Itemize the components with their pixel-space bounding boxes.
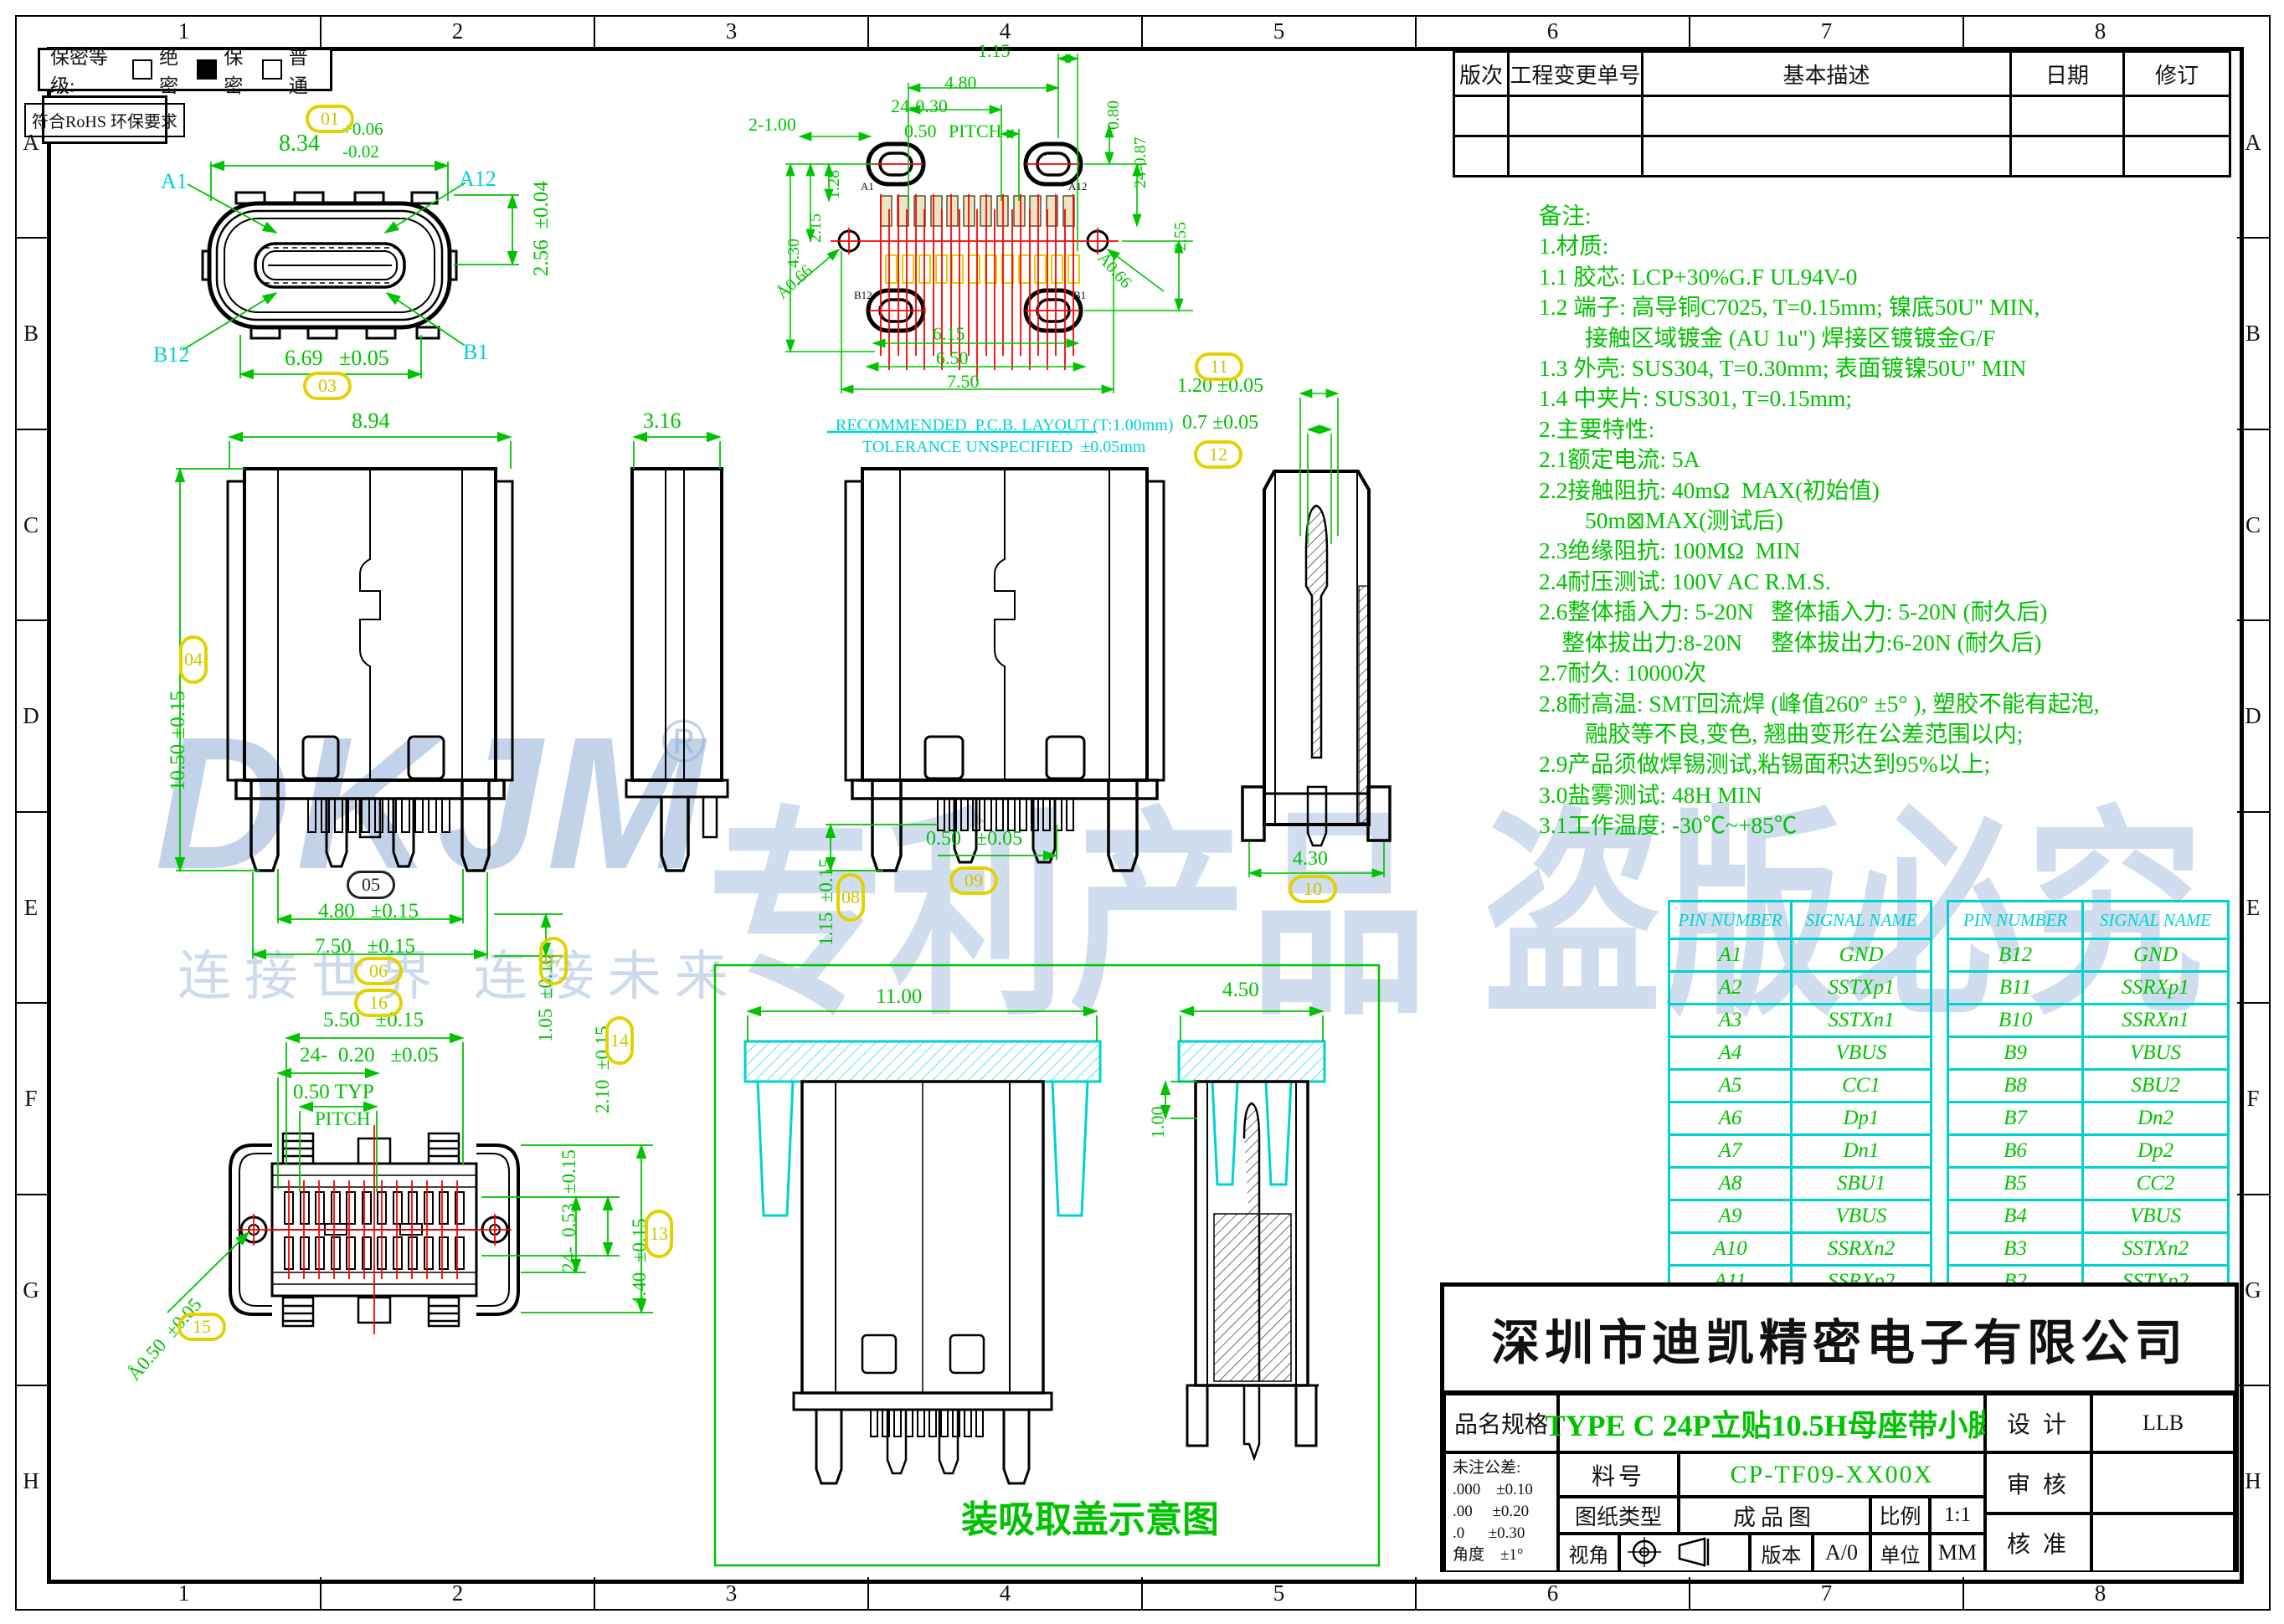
list-line: 2.2接触阻抗: 40mΩ MAX(初始值) bbox=[1539, 475, 2100, 506]
list-line: 1.材质: bbox=[1539, 231, 2100, 261]
zone-label: 4 bbox=[868, 1577, 1142, 1609]
dimension-label: 2.55 bbox=[1172, 222, 1189, 251]
pin-cell: A3 bbox=[1669, 1005, 1792, 1037]
view-angle-label: 视角 bbox=[1569, 1539, 1609, 1568]
pin-cell: Dn2 bbox=[2083, 1102, 2229, 1135]
pin-cell: B3 bbox=[1948, 1233, 2083, 1266]
dimension-label: 0.50 TYP bbox=[293, 1082, 374, 1102]
balloon-16: 16 bbox=[354, 989, 403, 1017]
list-line: 角度 ±1° bbox=[1453, 1544, 1550, 1566]
list-line: 1.3 外壳: SUS304, T=0.30mm; 表面镀镍50U" MIN bbox=[1539, 353, 2100, 383]
pin-table-header: PIN NUMBER bbox=[1948, 902, 2083, 939]
dimension-label: 4.80 ±0.15 bbox=[318, 901, 419, 922]
technical-notes: 备注:1.材质:1.1 胶芯: LCP+30%G.F UL94V-01.2 端子… bbox=[1539, 201, 2100, 841]
dimension-label: B1 bbox=[463, 342, 488, 363]
zone-labels-bottom: 12345678 bbox=[47, 1577, 2237, 1609]
security-option-label: 绝密 bbox=[159, 41, 190, 98]
pin-cell: A8 bbox=[1669, 1168, 1792, 1200]
pin-cell: SSRXp1 bbox=[2083, 972, 2229, 1005]
pin-cell: B4 bbox=[1948, 1200, 2083, 1233]
table-row: B6Dp2 bbox=[1948, 1135, 2229, 1168]
list-line: 2.4耐压测试: 100V AC R.M.S. bbox=[1539, 567, 2100, 597]
table-row: B12GND bbox=[1948, 939, 2229, 972]
zone-label: D bbox=[2237, 621, 2269, 813]
balloon-10: 10 bbox=[1289, 875, 1337, 903]
dimension-label: 24-0.87 bbox=[1132, 136, 1149, 188]
security-checkbox bbox=[197, 59, 217, 80]
security-legend-options: 绝密保密普通 bbox=[132, 41, 320, 98]
revision-cell bbox=[2124, 136, 2230, 177]
table-row: B11SSRXp1 bbox=[1948, 972, 2229, 1005]
dimension-label: TOLERANCE UNSPECIFIED ±0.05mm bbox=[862, 439, 1145, 455]
review-label: 审 核 bbox=[2007, 1467, 2070, 1500]
part-no-value: CP-TF09-XX00X bbox=[1731, 1461, 1934, 1489]
balloon-06: 06 bbox=[354, 957, 403, 985]
rohs-box: 符合RoHS 环保要求 bbox=[42, 95, 167, 144]
revision-table: 版次工程变更单号基本描述日期修订 bbox=[1453, 50, 2231, 177]
zone-label: F bbox=[2237, 1004, 2269, 1195]
list-line: 2.3绝缘阻抗: 100MΩ MIN bbox=[1539, 536, 2100, 566]
design-value: LLB bbox=[2143, 1411, 2184, 1436]
zone-label: A bbox=[2237, 47, 2269, 239]
revision-cell bbox=[2011, 136, 2124, 177]
table-row: A8SBU1 bbox=[1669, 1168, 1932, 1200]
unit-label: 单位 bbox=[1880, 1539, 1921, 1568]
revision-header: 基本描述 bbox=[1643, 52, 2011, 96]
table-row: A10SSRXn2 bbox=[1669, 1233, 1932, 1266]
dimension-label: 0.7 ±0.05 bbox=[1182, 413, 1258, 433]
revision-cell bbox=[2124, 96, 2230, 136]
drawing-type-value: 成品图 bbox=[1733, 1499, 1816, 1532]
part-name-label: 品名规格 bbox=[1454, 1406, 1548, 1440]
pin-cell: B11 bbox=[1948, 972, 2083, 1005]
table-row: A5CC1 bbox=[1669, 1070, 1932, 1102]
zone-label: 8 bbox=[1963, 1577, 2237, 1609]
dimension-label: 11.00 bbox=[876, 986, 922, 1007]
zone-label: 5 bbox=[1142, 15, 1416, 47]
pin-cell: SSTXn1 bbox=[1792, 1005, 1932, 1037]
security-checkbox bbox=[132, 59, 152, 80]
revision-cell bbox=[1454, 136, 1509, 177]
dimension-label: 3.16 bbox=[643, 410, 682, 432]
dimension-label: 4.80 bbox=[944, 74, 977, 92]
list-line: .000 ±0.10 bbox=[1453, 1479, 1550, 1501]
engineering-drawing-sheet: { "colors":{"g":"#00c300","c":"#00d2d2",… bbox=[0, 0, 2284, 1624]
scale-value: 1:1 bbox=[1944, 1503, 1971, 1527]
drawing-type-label: 图纸类型 bbox=[1575, 1500, 1662, 1531]
list-line: 2.9产品须做焊锡测试,粘锡面积达到95%以上; bbox=[1539, 749, 2100, 779]
list-line: 融胶等不良,变色, 翘曲变形在公差范围以内; bbox=[1539, 719, 2100, 749]
dimension-label: 6.50 bbox=[936, 349, 969, 367]
pin-cell: VBUS bbox=[1792, 1037, 1932, 1070]
table-row: B7Dn2 bbox=[1948, 1102, 2229, 1135]
revision-header: 工程变更单号 bbox=[1509, 52, 1643, 96]
table-row: A9VBUS bbox=[1669, 1200, 1932, 1233]
pin-table-a: PIN NUMBERSIGNAL NAMEA1GNDA2SSTXp1A3SSTX… bbox=[1668, 900, 1932, 1332]
table-row: B5CC2 bbox=[1948, 1168, 2229, 1200]
pin-table-header: SIGNAL NAME bbox=[1792, 902, 1932, 939]
dimension-label: RECOMMENDED P.C.B. LAYOUT (T:1.00mm) bbox=[836, 417, 1173, 434]
zone-label: C bbox=[15, 429, 47, 621]
zone-label: C bbox=[2237, 429, 2269, 621]
tolerance-lines: .000 ±0.10.00 ±0.20.0 ±0.30角度 ±1° bbox=[1453, 1479, 1550, 1566]
zone-label: 1 bbox=[47, 1577, 321, 1609]
list-line: .0 ±0.30 bbox=[1453, 1523, 1550, 1544]
table-row: A2SSTXp1 bbox=[1669, 972, 1932, 1005]
scale-label: 比例 bbox=[1879, 1500, 1921, 1530]
pin-cell: SBU1 bbox=[1792, 1168, 1932, 1200]
dimension-label: 6.15 bbox=[933, 325, 965, 343]
pin-cell: GND bbox=[1792, 939, 1932, 972]
zone-label: 2 bbox=[321, 1577, 594, 1609]
dimension-label: A12 bbox=[459, 168, 496, 190]
list-line: 1.1 胶芯: LCP+30%G.F UL94V-0 bbox=[1539, 262, 2100, 292]
approve-label: 核 准 bbox=[2007, 1526, 2070, 1560]
version-value: A/0 bbox=[1825, 1540, 1858, 1565]
tolerance-title: 未注公差: bbox=[1453, 1457, 1550, 1479]
dimension-label: 6.69 ±0.05 bbox=[285, 347, 389, 369]
table-row: A4VBUS bbox=[1669, 1037, 1932, 1070]
dimension-label: 8.34 bbox=[279, 132, 320, 156]
pin-cell: A5 bbox=[1669, 1070, 1792, 1102]
revision-cell bbox=[1509, 96, 1643, 136]
dimension-label: 8.94 bbox=[352, 410, 390, 432]
pin-cell: CC1 bbox=[1792, 1070, 1932, 1102]
table-row: B10SSRXn1 bbox=[1948, 1005, 2229, 1037]
part-no-label: 料号 bbox=[1592, 1458, 1645, 1492]
revision-cell bbox=[1454, 96, 1509, 136]
dimension-label: 24- 0.20 ±0.05 bbox=[300, 1045, 439, 1066]
table-row: A6Dp1 bbox=[1669, 1102, 1932, 1135]
pin-table-header: SIGNAL NAME bbox=[2083, 902, 2229, 939]
dimension-label: B12 bbox=[854, 290, 872, 301]
pin-cell: B7 bbox=[1948, 1102, 2083, 1135]
revision-cell bbox=[1509, 136, 1643, 177]
tolerance-box: 未注公差: .000 ±0.10.00 ±0.20.0 ±0.30角度 ±1° bbox=[1444, 1452, 1558, 1572]
table-row: B8SBU2 bbox=[1948, 1070, 2229, 1102]
dimension-label: 1.15 bbox=[978, 42, 1011, 60]
zone-label: B bbox=[2237, 239, 2269, 430]
dimension-label: 2.15 bbox=[807, 213, 824, 243]
pin-cell: B8 bbox=[1948, 1070, 2083, 1102]
pin-cell: A4 bbox=[1669, 1037, 1792, 1070]
pin-table-b: PIN NUMBERSIGNAL NAMEB12GNDB11SSRXp1B10S… bbox=[1947, 900, 2230, 1332]
revision-header: 修订 bbox=[2124, 52, 2230, 96]
zone-label: 6 bbox=[1416, 15, 1690, 47]
list-line: 2.8耐高温: SMT回流焊 (峰值260° ±5° ), 塑胶不能有起泡, bbox=[1539, 689, 2100, 719]
list-line: 1.4 中夹片: SUS301, T=0.15mm; bbox=[1539, 383, 2100, 414]
revision-header: 日期 bbox=[2011, 52, 2124, 96]
balloon-15: 15 bbox=[177, 1313, 226, 1341]
pin-cell: A9 bbox=[1669, 1200, 1792, 1233]
unit-value: MM bbox=[1938, 1540, 1977, 1565]
list-line: 接触区域镀金 (AU 1u") 焊接区镀镀金G/F bbox=[1539, 323, 2100, 353]
part-name-value: TYPE C 24P立贴10.5H母座带小脚 bbox=[1546, 1401, 1998, 1445]
dimension-label: 1.15 ±0.15 bbox=[816, 858, 836, 946]
zone-label: 8 bbox=[1963, 15, 2237, 47]
dimension-label: 0.50 ±0.05 bbox=[926, 829, 1022, 849]
pin-cell: VBUS bbox=[2083, 1037, 2229, 1070]
pin-cell: B12 bbox=[1948, 939, 2083, 972]
table-row: A1GND bbox=[1669, 939, 1932, 972]
balloon-01: 01 bbox=[306, 105, 354, 133]
pin-cell: B6 bbox=[1948, 1135, 2083, 1168]
dimension-label: 4.50 bbox=[1222, 979, 1259, 1000]
dimension-label: 2-1.00 bbox=[748, 116, 796, 134]
list-line: 2.主要特性: bbox=[1539, 414, 2100, 445]
security-legend: 保密等级: 绝密保密普通 bbox=[38, 48, 332, 91]
zone-label: G bbox=[2237, 1195, 2269, 1386]
pin-cell: GND bbox=[2083, 939, 2229, 972]
zone-label: E bbox=[15, 812, 47, 1004]
dimension-label: A1 bbox=[861, 181, 874, 192]
balloon-03: 03 bbox=[303, 372, 352, 400]
pin-cell: B10 bbox=[1948, 1005, 2083, 1037]
zone-labels-top: 12345678 bbox=[47, 15, 2237, 47]
dimension-label: 24- 0.53 ±0.15 bbox=[559, 1149, 579, 1272]
zone-label: 2 bbox=[321, 15, 594, 47]
pin-cell: A10 bbox=[1669, 1233, 1792, 1266]
zone-label: 3 bbox=[594, 15, 868, 47]
table-row: B3SSTXn2 bbox=[1948, 1233, 2229, 1266]
security-checkbox bbox=[262, 59, 282, 80]
zone-labels-left: ABCDEFGH bbox=[15, 47, 47, 1577]
dimension-label: 24-0.30 bbox=[891, 97, 948, 116]
dimension-label: B1 bbox=[1073, 290, 1086, 301]
zone-labels-right: ABCDEFGH bbox=[2237, 47, 2269, 1577]
list-line: 备注: bbox=[1539, 201, 2100, 231]
pin-cell: SSRXn2 bbox=[1792, 1233, 1932, 1266]
pin-cell: A7 bbox=[1669, 1135, 1792, 1168]
rohs-label: 符合RoHS 环保要求 bbox=[24, 103, 185, 137]
pin-cell: SBU2 bbox=[2083, 1070, 2229, 1102]
zone-label: H bbox=[2237, 1386, 2269, 1578]
pin-cell: Dp1 bbox=[1792, 1102, 1932, 1135]
zone-label: 3 bbox=[594, 1577, 868, 1609]
dimension-label: 0.50 bbox=[904, 122, 937, 141]
list-line: 2.1额定电流: 5A bbox=[1539, 445, 2100, 475]
pin-cell: SSRXn1 bbox=[2083, 1005, 2229, 1037]
zone-label: 7 bbox=[1690, 1577, 1963, 1609]
pin-cell: VBUS bbox=[1792, 1200, 1932, 1233]
zone-label: 5 bbox=[1142, 1577, 1416, 1609]
pin-cell: SSTXn2 bbox=[2083, 1233, 2229, 1266]
dimension-label: 4.30 bbox=[1293, 849, 1328, 869]
pin-table-header: PIN NUMBER bbox=[1669, 902, 1792, 939]
balloon-13: 13 bbox=[645, 1210, 673, 1258]
zone-label: B bbox=[15, 239, 47, 430]
revision-cell bbox=[2011, 96, 2124, 136]
dimension-label: 1.00 bbox=[1149, 1107, 1167, 1139]
pin-cell: VBUS bbox=[2083, 1200, 2229, 1233]
revision-cell bbox=[1643, 96, 2011, 136]
dimension-label: PITCH bbox=[949, 122, 1002, 141]
list-line: 2.6整体插入力: 5-20N 整体插入力: 5-20N (耐久后) bbox=[1539, 597, 2100, 627]
dimension-label: PITCH bbox=[315, 1109, 370, 1128]
balloon-09: 09 bbox=[949, 866, 998, 895]
balloon-05: 05 bbox=[347, 871, 395, 899]
pin-cell: A1 bbox=[1669, 939, 1792, 972]
dimension-label: 4.30 bbox=[785, 239, 802, 268]
dimension-label: A12 bbox=[1068, 181, 1087, 192]
title-block: 深圳市迪凯精密电子有限公司 品名规格 TYPE C 24P立贴10.5H母座带小… bbox=[1440, 1282, 2239, 1572]
dimension-label: 10.50 ±0.15 bbox=[167, 691, 188, 791]
pin-cell: Dn1 bbox=[1792, 1135, 1932, 1168]
design-label: 设 计 bbox=[2007, 1406, 2070, 1440]
balloon-11: 11 bbox=[1195, 352, 1243, 381]
list-line: 3.1工作温度: -30℃~+85℃ bbox=[1539, 810, 2100, 840]
dimension-label: 2.56 ±0.04 bbox=[531, 181, 552, 276]
pin-cell: B5 bbox=[1948, 1168, 2083, 1200]
list-line: .00 ±0.20 bbox=[1453, 1501, 1550, 1523]
pin-cell: Dp2 bbox=[2083, 1135, 2229, 1168]
balloon-12: 12 bbox=[1194, 440, 1242, 469]
table-row: B4VBUS bbox=[1948, 1200, 2229, 1233]
pin-cell: A6 bbox=[1669, 1102, 1792, 1135]
zone-label: D bbox=[15, 621, 47, 813]
zone-label: 7 bbox=[1690, 15, 1963, 47]
dimension-label: -0.02 bbox=[342, 143, 379, 161]
dimension-label: 装吸取盖示意图 bbox=[961, 1502, 1219, 1539]
dimension-label: 0.80 bbox=[1105, 100, 1122, 130]
third-angle-projection-icon bbox=[1621, 1535, 1730, 1569]
zone-label: H bbox=[15, 1386, 47, 1578]
zone-label: F bbox=[15, 1004, 47, 1195]
list-line: 整体拔出力:8-20N 整体拔出力:6-20N (耐久后) bbox=[1539, 628, 2100, 658]
security-legend-label: 保密等级: bbox=[50, 41, 124, 98]
dimension-label: 1.28 bbox=[826, 170, 842, 199]
balloon-07: 07 bbox=[539, 937, 568, 985]
balloon-08: 08 bbox=[836, 873, 865, 922]
list-line: 2.7耐久: 10000次 bbox=[1539, 658, 2100, 688]
dimension-label: B12 bbox=[153, 344, 189, 366]
table-row: B9VBUS bbox=[1948, 1037, 2229, 1070]
dimension-label: 7.50 ±0.15 bbox=[315, 936, 415, 957]
table-row: A3SSTXn1 bbox=[1669, 1005, 1932, 1037]
pin-cell: CC2 bbox=[2083, 1168, 2229, 1200]
zone-label: E bbox=[2237, 812, 2269, 1004]
zone-label: G bbox=[15, 1195, 47, 1386]
pin-cell: SSTXp1 bbox=[1792, 972, 1932, 1005]
revision-header: 版次 bbox=[1454, 52, 1509, 96]
balloon-04: 04 bbox=[179, 635, 208, 684]
table-row: A7Dn1 bbox=[1669, 1135, 1932, 1168]
pin-cell: A2 bbox=[1669, 972, 1792, 1005]
revision-cell bbox=[1643, 136, 2011, 177]
company-name: 深圳市迪凯精密电子有限公司 bbox=[1491, 1303, 2188, 1374]
balloon-14: 14 bbox=[605, 1016, 634, 1065]
list-line: 50m⊠MAX(测试后) bbox=[1539, 506, 2100, 536]
list-line: 1.2 端子: 高导铜C7025, T=0.15mm; 镍底50U" MIN, bbox=[1539, 292, 2100, 322]
list-line: 3.0盐雾测试: 48H MIN bbox=[1539, 780, 2100, 810]
security-option-label: 保密 bbox=[224, 41, 255, 98]
version-label: 版本 bbox=[1762, 1539, 1802, 1568]
zone-label: 6 bbox=[1416, 1577, 1690, 1609]
pin-cell: B9 bbox=[1948, 1037, 2083, 1070]
security-option-label: 普通 bbox=[289, 41, 320, 98]
dimension-label: 7.50 bbox=[947, 373, 980, 391]
dimension-label: A1 bbox=[161, 171, 188, 193]
